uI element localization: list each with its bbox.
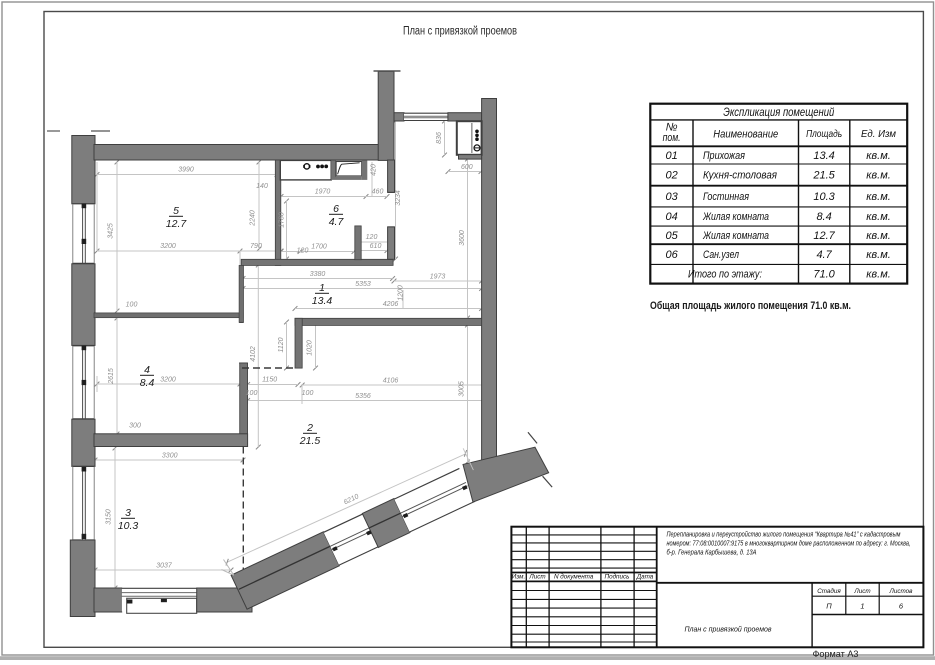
svg-text:13.4: 13.4 [312,295,333,307]
svg-text:Экспликация помещений: Экспликация помещений [723,107,834,119]
svg-text:04: 04 [665,211,677,223]
svg-text:кв.м.: кв.м. [866,150,891,162]
svg-text:21.5: 21.5 [299,435,321,447]
svg-text:1150: 1150 [262,377,277,384]
svg-text:Стадия: Стадия [817,587,841,595]
svg-text:Жилая комната: Жилая комната [702,230,769,242]
svg-text:8.4: 8.4 [816,211,831,223]
svg-text:кв.м.: кв.м. [866,211,891,223]
svg-text:кв.м.: кв.м. [866,230,891,242]
svg-text:10.3: 10.3 [118,520,139,532]
svg-text:71.0: 71.0 [813,269,835,281]
svg-text:Листов: Листов [889,588,914,595]
svg-text:6: 6 [333,203,339,215]
svg-text:1120: 1120 [278,337,285,352]
svg-text:1: 1 [860,602,864,611]
svg-text:3380: 3380 [310,271,326,278]
svg-text:21.5: 21.5 [812,170,835,182]
svg-text:3990: 3990 [178,167,194,174]
svg-text:600: 600 [461,164,473,171]
svg-text:100: 100 [246,390,258,397]
svg-text:100: 100 [302,390,314,397]
svg-text:номером: 77:08:0010007:9175 в: номером: 77:08:0010007:9175 в многокварт… [667,540,911,548]
svg-text:N документа: N документа [554,573,594,581]
svg-text:8.4: 8.4 [140,377,155,389]
svg-text:1970: 1970 [315,188,331,195]
svg-text:3425: 3425 [108,223,115,239]
svg-text:4: 4 [144,364,150,376]
svg-text:2615: 2615 [108,368,115,385]
svg-text:План с привязкой проемов: План с привязкой проемов [403,26,517,38]
svg-text:02: 02 [665,170,677,182]
svg-text:П: П [826,602,832,611]
svg-text:Лист: Лист [853,588,870,595]
svg-text:06: 06 [665,249,678,261]
svg-text:1020: 1020 [307,340,314,356]
svg-text:План с привязкой проемов: План с привязкой проемов [684,626,771,634]
svg-text:5356: 5356 [355,393,371,400]
svg-text:Итого по этажу:: Итого по этажу: [688,269,762,281]
svg-text:10.3: 10.3 [813,191,835,203]
svg-text:кв.м.: кв.м. [866,191,891,203]
svg-text:б-р. Генерала Карбышева, д. 13: б-р. Генерала Карбышева, д. 13А [667,549,757,557]
svg-text:4102: 4102 [250,346,257,362]
svg-text:Дата: Дата [636,574,654,581]
svg-text:Площадь: Площадь [806,128,842,140]
svg-text:кв.м.: кв.м. [866,269,891,281]
svg-text:Перепланировка и переустройств: Перепланировка и переустройство жилого п… [667,531,901,539]
svg-text:пом.: пом. [663,132,681,144]
svg-text:1700: 1700 [311,244,327,251]
svg-text:4.7: 4.7 [816,249,832,261]
svg-text:1: 1 [319,282,325,294]
svg-text:120: 120 [366,234,378,241]
svg-text:460: 460 [372,189,384,196]
svg-text:836: 836 [436,132,443,144]
svg-text:5: 5 [173,205,179,217]
svg-text:4106: 4106 [383,378,399,385]
svg-text:420: 420 [371,164,378,176]
svg-text:300: 300 [129,422,141,429]
svg-text:3: 3 [125,507,131,519]
svg-text:3234: 3234 [395,190,402,206]
svg-text:3005: 3005 [458,381,465,397]
svg-text:3150: 3150 [106,509,113,525]
svg-text:Лист: Лист [528,574,545,581]
svg-text:610: 610 [370,243,382,250]
svg-text:4.7: 4.7 [329,216,345,228]
svg-text:кв.м.: кв.м. [866,170,891,182]
svg-text:Общая площадь жилого помещения: Общая площадь жилого помещения 71.0 кв.м… [650,300,851,312]
svg-text:кв.м.: кв.м. [866,249,891,261]
svg-text:Гостинная: Гостинная [703,191,749,203]
svg-text:3300: 3300 [162,453,178,460]
svg-text:Подпись: Подпись [605,573,630,581]
svg-text:Кухня-столовая: Кухня-столовая [703,170,777,182]
svg-text:1200: 1200 [398,285,405,301]
svg-text:1973: 1973 [430,273,446,280]
svg-text:Ед. Изм: Ед. Изм [861,128,896,140]
svg-text:Наименование: Наименование [713,129,778,141]
svg-text:2: 2 [306,422,313,434]
svg-text:01: 01 [665,150,677,162]
svg-text:100: 100 [126,302,138,309]
svg-text:120: 120 [297,248,309,255]
svg-text:3600: 3600 [459,230,466,246]
svg-text:Формат А3: Формат А3 [813,649,859,660]
svg-text:1780: 1780 [279,212,286,228]
svg-text:03: 03 [665,191,678,203]
svg-text:12.7: 12.7 [813,230,835,242]
svg-text:140: 140 [256,183,268,190]
svg-text:2240: 2240 [250,210,257,227]
svg-text:4206: 4206 [383,301,399,308]
svg-text:3037: 3037 [156,563,173,570]
svg-text:12.7: 12.7 [166,218,188,230]
svg-text:3200: 3200 [160,243,176,250]
svg-text:Сан.узел: Сан.узел [703,249,739,261]
svg-text:13.4: 13.4 [813,150,834,162]
svg-text:790: 790 [250,243,262,250]
svg-text:Прихожая: Прихожая [703,150,745,162]
svg-text:3200: 3200 [160,376,176,383]
svg-text:Жилая комната: Жилая комната [702,211,769,223]
svg-text:5353: 5353 [355,281,371,288]
svg-text:Изм.: Изм. [512,574,525,581]
svg-text:05: 05 [665,230,678,242]
